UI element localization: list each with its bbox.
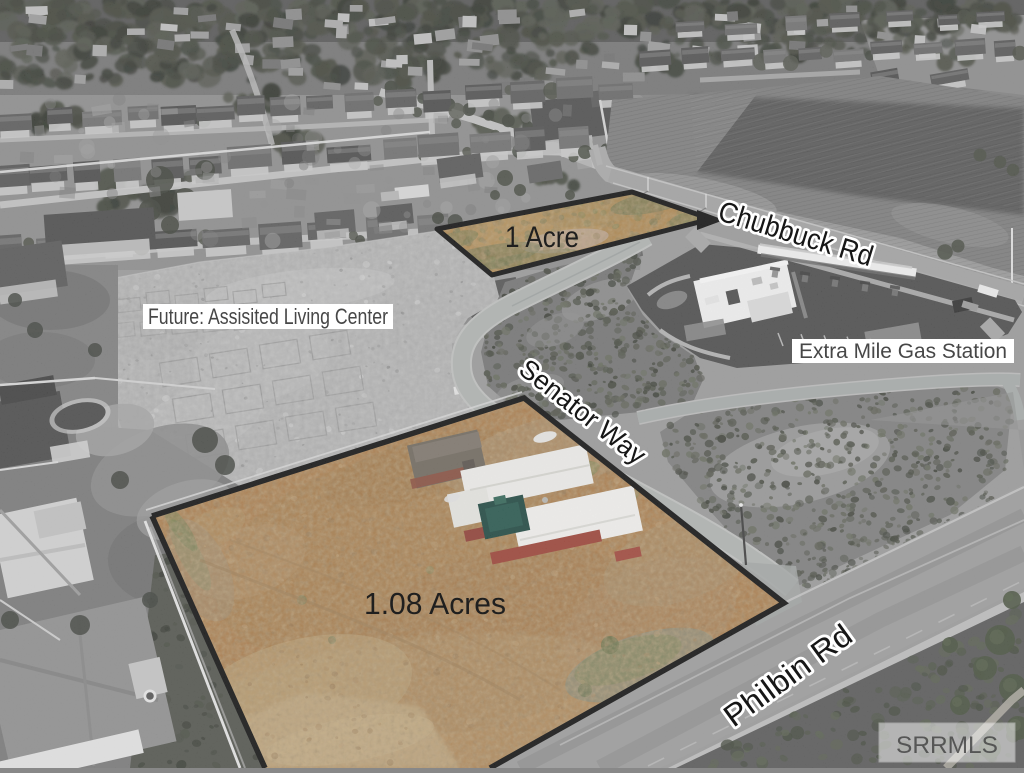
- svg-text:Extra Mile Gas Station: Extra Mile Gas Station: [799, 340, 1007, 363]
- svg-text:1 Acre: 1 Acre: [505, 221, 579, 254]
- svg-text:1.08 Acres: 1.08 Acres: [364, 586, 506, 621]
- svg-text:Future: Assisited Living Cente: Future: Assisited Living Center: [148, 304, 388, 329]
- svg-text:SRRMLS: SRRMLS: [896, 732, 998, 759]
